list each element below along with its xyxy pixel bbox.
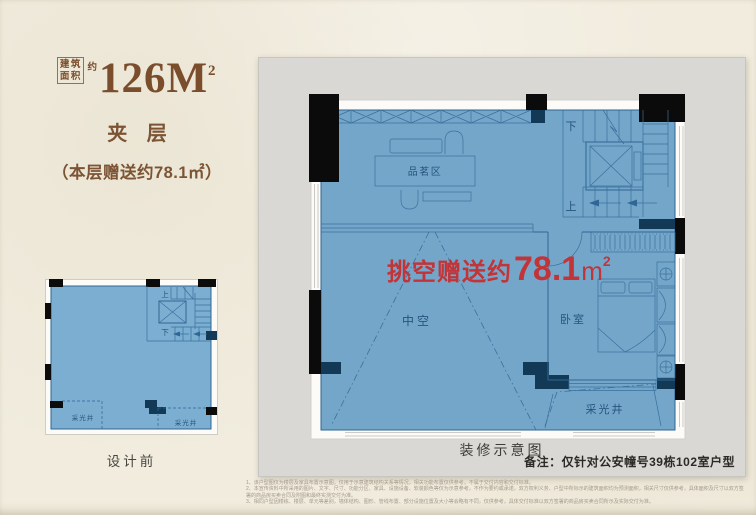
up-label: 上	[161, 290, 169, 299]
bonus-value: 78.1	[514, 250, 580, 289]
disclaimer-line: 2、本宣传资料中所采用的图片、文字、尺寸、功能分区、家具、设施设备、软装颜色等仅…	[246, 486, 748, 499]
up-label: 上	[566, 200, 577, 213]
area-label-line2: 面积	[58, 71, 83, 83]
area-approx-label: 约	[87, 59, 97, 73]
floor-subtitle: （本层赠送约78.1㎡）	[36, 159, 238, 183]
down-label: 下	[566, 121, 577, 133]
disclaimer-block: 1、该户型图仅为楼层及家具布置示意图，仅用于示意建筑结构关系等情况，相关功能布置…	[246, 480, 748, 505]
room-area	[51, 286, 211, 429]
down-label: 下	[161, 328, 169, 337]
area-value: 126M2	[99, 50, 217, 100]
light-well-label: 采光井	[72, 413, 95, 422]
area-sup: 2	[208, 63, 217, 79]
floor-title: 夹 层	[36, 117, 238, 146]
bedroom-label: 卧室	[560, 312, 586, 326]
before-plan-svg: 上 下 采光井 采光井	[45, 279, 218, 435]
tea-area-label: 品茗区	[408, 166, 443, 178]
plan-note: 备注：仅针对公安幢号39栋102室户型	[524, 453, 735, 470]
bonus-unit: m	[581, 256, 603, 287]
void-label: 中空	[402, 313, 432, 328]
before-plan-figure: 上 下 采光井 采光井 设计前	[45, 279, 218, 470]
area-label-line1: 建筑	[58, 59, 83, 71]
area-number: 126M	[99, 55, 208, 102]
area-line: 建筑 面积 约 126M2	[36, 50, 238, 100]
area-label-box: 建筑 面积	[57, 57, 84, 84]
before-plan-caption: 设计前	[45, 450, 218, 470]
header-block: 建筑 面积 约 126M2 夹 层 （本层赠送约78.1㎡）	[36, 50, 238, 183]
bonus-prefix: 挑空赠送约	[387, 252, 512, 287]
light-well-label: 采光井	[175, 418, 198, 427]
disclaimer-line: 3、相同户型因楼栋、楼层、单元等差别，墙体结构、图形、管线布置、部分设施位置及大…	[246, 499, 748, 505]
floorplan-poster: 建筑 面积 约 126M2 夹 层 （本层赠送约78.1㎡）	[0, 0, 756, 515]
bonus-sup: 2	[603, 253, 611, 269]
bonus-area-highlight: 挑空赠送约78.1m2	[387, 250, 611, 289]
after-plan-panel: 品茗区 下 上	[258, 57, 746, 477]
light-well-label: 采光井	[586, 402, 625, 416]
